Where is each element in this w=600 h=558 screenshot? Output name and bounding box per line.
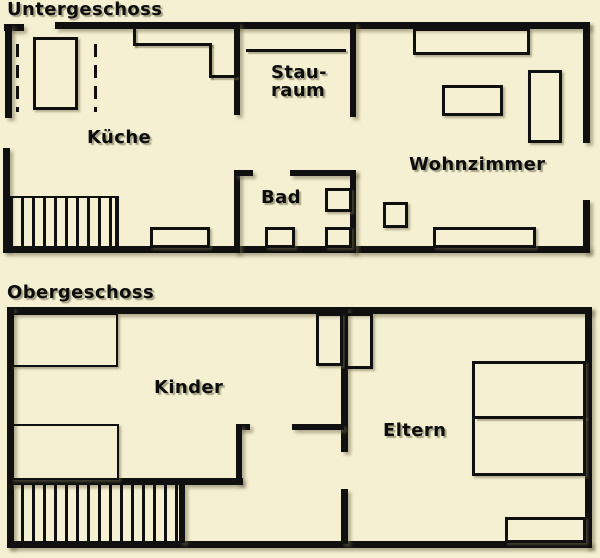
eltern-bed [472, 361, 586, 476]
stairs-side-wall [179, 485, 185, 543]
stair-stub-wall [236, 424, 242, 484]
obergeschoss-title: Obergeschoss [7, 284, 154, 302]
eltern-door-wall [292, 424, 344, 430]
eltern-dresser [505, 517, 586, 543]
stairs-upper-floor [8, 485, 179, 541]
obergeschoss-plan: ObergeschossKinderEltern [0, 0, 600, 558]
room-label-kinder: Kinder [154, 379, 223, 397]
kinder-wardrobe-bottom [11, 424, 119, 480]
kinder-wardrobe-top [11, 313, 118, 367]
room-label-eltern: Eltern [383, 422, 446, 440]
kinder-eltern-wall-lower [341, 489, 348, 544]
right-wall [585, 307, 592, 548]
eltern-closet [345, 313, 373, 369]
floorplan-image: UntergeschossKücheStau- raumWohnzimmerBa… [0, 0, 600, 558]
kinder-closet [316, 313, 343, 366]
